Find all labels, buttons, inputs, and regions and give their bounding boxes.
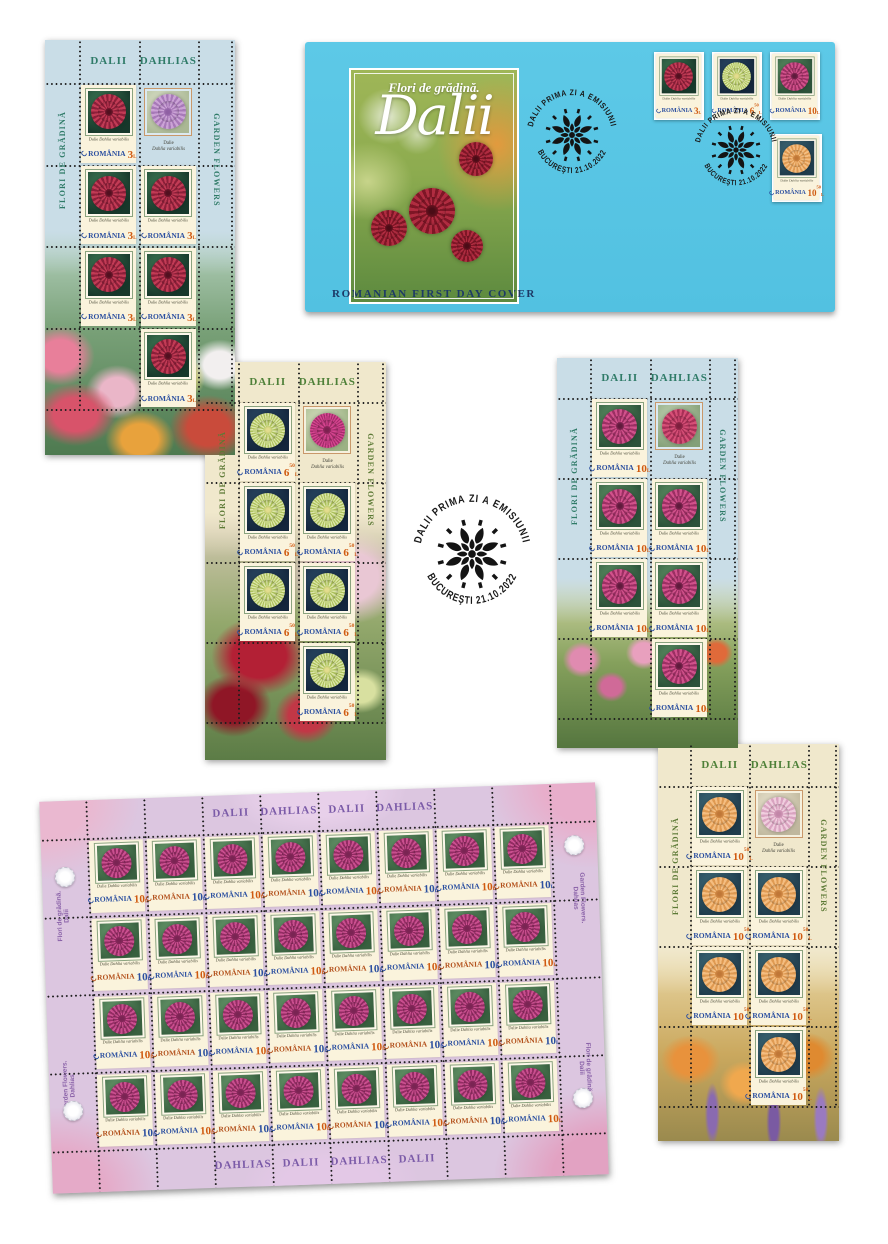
stamp-species-caption: Dalie Dahlia variabilis [392,1029,432,1035]
stamp-species-caption: Dalie Dahlia variabilis [506,947,546,953]
posthorn-icon [211,1126,219,1134]
stamp-country-value-row: ROMÂNIA 10L [327,1115,388,1135]
posthorn-icon [260,890,268,898]
margin-label: Garden Flowers.Dahlias [566,838,592,959]
stamp-photo [758,1033,800,1075]
stamp: Dalie Dahlia variabilis ROMÂNIA 10L [149,915,205,989]
header-dalii: DALII [590,358,650,398]
stamp-country-value-row: ROMÂNIA 10L [501,1109,562,1129]
posthorn-icon [588,464,596,472]
stamp-country-value-row: ROMÂNIA 10L [385,1113,446,1133]
country-name: ROMÂNIA [210,891,248,900]
postmark-rosette-icon [546,109,599,162]
stamp-country-value-row: ROMÂNIA 10L [589,459,650,477]
sheet-top-labels: DALII DAHLIAS DALII DAHLIAS [201,795,434,825]
country-name: ROMÂNIA [88,313,126,321]
country-name: ROMÂNIA [693,1012,731,1020]
stamp-photo-frame [93,841,139,884]
stamp-photo [276,994,316,1030]
dahlia-flower-icon [457,1069,488,1100]
stamp-species-caption: Dalie Dahlia variabilis [248,616,288,620]
minisheet-red-3l: Dalie Dahlia variabilis ROMÂNIA 3L Dalie… [45,40,235,455]
country-name: ROMÂNIA [271,967,309,976]
stamp: Dalie Dahlia variabilis ROMÂNIA 10L [326,987,382,1061]
country-name: ROMÂNIA [505,1037,543,1046]
dahlia-flower-icon [222,999,253,1030]
stamp-photo [510,1064,550,1100]
country-name: ROMÂNIA [102,1129,140,1138]
country-name: ROMÂNIA [216,1047,254,1056]
stamp-photo-frame [499,827,545,870]
stamp-species-caption: Dalie Dahlia variabilis [213,879,253,885]
stamp-country-value-row: ROMÂNIA 650L [237,463,298,481]
stamp: Dalie Dahlia variabilis ROMÂNIA 10L [147,837,203,911]
vignette-photo-frame [655,402,703,450]
dahlia-flower-icon [780,62,809,91]
stamp-photo [502,830,542,866]
stamp-photo [331,914,371,950]
dahlia-flower-icon [101,847,132,878]
vignette-photo [758,793,800,835]
stamp-species-caption: Dalie Dahlia variabilis [279,1111,319,1117]
postmark-rosette-icon [438,520,507,589]
stamp-photo [505,908,545,944]
stamp-value: 3L [187,226,196,244]
stamp-photo-frame [596,402,644,450]
stamp-photo-frame [144,332,192,380]
svg-text:BUCUREŞTI 21.10.2022: BUCUREŞTI 21.10.2022 [703,162,770,187]
stamp-photo-frame [755,870,803,918]
stamp: Dalie Dahlia variabilis ROMÂNIA 10L [271,1067,327,1141]
svg-text:DALII PRIMA ZI A EMISIUNII: DALII PRIMA ZI A EMISIUNII [693,106,779,143]
dahlia-flower-icon [512,989,543,1020]
stamp: Dalie Dahlia variabilis ROMÂNIA 10L [89,839,145,913]
country-name: ROMÂNIA [450,1117,488,1126]
stamp-photo [306,489,348,531]
stamp-country-value-row: ROMÂNIA 10L [150,1043,211,1063]
stamp-country-value-row: ROMÂNIA 10L [498,1031,559,1051]
stamp-photo [102,1000,142,1036]
country-name: ROMÂNIA [304,548,342,556]
dahlia-flower-icon [662,649,697,684]
stamp-country-value-row: ROMÂNIA 10L [153,1121,214,1141]
stamp-country-value-row: ROMÂNIA 1050L [745,927,811,945]
stamp-country-value-row: ROMÂNIA 10L [589,539,650,557]
stamp-issue-presentation: Dalie Dahlia variabilis ROMÂNIA 3L Dalie… [0,0,888,1244]
country-name: ROMÂNIA [304,708,342,716]
stamp-species-caption: Dalie Dahlia variabilis [332,953,372,959]
stamp-photo [389,912,429,948]
stamp-species-caption: Dalie Dahlia variabilis [699,920,739,924]
stamp: Dalie Dahlia variabilis ROMÂNIA 1050L [692,947,747,1025]
country-name: ROMÂNIA [500,881,538,890]
side-label-en: GARDEN FLOWERS [211,90,223,230]
stamp-species-caption: Dalie Dahlia variabilis [97,883,137,889]
country-name: ROMÂNIA [97,973,135,982]
stamp-value: 10L [547,1109,562,1127]
stamp: Dalie Dahlia variabilis ROMÂNIA 10L [329,1065,385,1139]
dahlia-flower-icon [151,176,186,211]
sheet-header: DALII DAHLIAS [238,362,357,402]
header-dahlias: DAHLIAS [750,744,810,786]
dahlia-flower-icon [761,877,796,912]
stamp-value: 3L [187,389,196,407]
stamp-photo [719,59,753,93]
stamp-country-value-row: ROMÂNIA 10L [266,1039,327,1059]
posthorn-icon [495,960,503,968]
country-name: ROMÂNIA [596,544,634,552]
stamp: Dalie Dahlia variabilis ROMÂNIA 10L [652,559,707,637]
dahlia-flower-icon [225,1077,256,1108]
country-name: ROMÂNIA [447,1039,485,1048]
stamp-value: 1050L [792,1007,812,1025]
stamp-value: 10L [542,953,557,971]
posthorn-icon [379,964,387,972]
stamp-species-caption: Dalie Dahlia variabilis [221,1113,261,1119]
posthorn-icon [140,394,148,402]
posthorn-icon [437,962,445,970]
stamp-species-caption: Dalie Dahlia variabilis [448,949,488,955]
stamp-photo-frame [383,831,429,874]
posthorn-icon [321,966,329,974]
country-name: ROMÂNIA [155,971,193,980]
vignette-caption: DalieDahlia variabilis [311,459,344,471]
stamp-photo [599,405,641,447]
stamp-photo [394,1068,434,1104]
stamp-species-caption: Dalie Dahlia variabilis [662,97,695,101]
country-name: ROMÂNIA [148,232,186,240]
dahlia-flower-icon [151,339,186,374]
stamp-value: 10L [808,103,820,118]
stamp: Dalie Dahlia variabilis ROMÂNIA 10L [379,829,435,903]
stamp-photo-frame [333,1067,379,1110]
sheet-vignette-label: DalieDahlia variabilis [751,787,806,865]
stamp-country-value-row: ROMÂNIA 3L [141,389,196,407]
dahlia-flower-icon [275,841,306,872]
posthorn-icon [202,892,210,900]
stamp-photo-frame [596,562,644,610]
stamp-photo-frame [303,486,351,534]
stamp-photo [661,59,695,93]
dahlia-flower-icon [164,1001,195,1032]
stamp-country-value-row: ROMÂNIA 10L [649,539,710,557]
posthorn-icon [80,231,88,239]
dahlia-flower-icon [338,995,369,1026]
stamp: Dalie Dahlia variabilis ROMÂNIA 10L [91,917,147,991]
stamp-country-value-row: ROMÂNIA 3L [141,308,196,326]
dahlia-flower-icon [664,62,693,91]
stamp-photo-frame [273,991,319,1034]
stamp-photo-frame [154,917,200,960]
stamp-species-caption: Dalie Dahlia variabilis [271,877,311,883]
svg-text:DALII PRIMA ZI A EMISIUNII: DALII PRIMA ZI A EMISIUNII [412,493,532,545]
stamp-country-value-row: ROMÂNIA 3L [81,308,136,326]
country-name: ROMÂNIA [244,468,282,476]
stamp-grid: Dalie Dahlia variabilis ROMÂNIA 10L Dali… [87,822,562,1150]
stamp-photo [444,832,484,868]
country-name: ROMÂNIA [387,963,425,972]
country-name: ROMÂNIA [752,932,790,940]
stamp-photo [247,569,289,611]
stamp-value: 10L [545,1031,560,1049]
posthorn-icon [269,1124,277,1132]
stamp-species-caption: Dalie Dahlia variabilis [274,955,314,961]
dahlia-flower-icon [91,176,126,211]
stamp-photo-frame [655,482,703,530]
stamp-species-caption: Dalie Dahlia variabilis [511,1103,551,1109]
dahlia-flower-icon [602,409,637,444]
stamp: Dalie Dahlia variabilis ROMÂNIA 10L [494,825,550,899]
country-name: ROMÂNIA [276,1123,314,1132]
dahlia-flower-icon [278,919,309,950]
first-day-postmark: DALII PRIMA ZI A EMISIUNII BUCUREŞTI 21.… [520,83,624,187]
stamp-photo-frame [244,406,292,454]
dahlia-flower-icon [515,1067,546,1098]
stamp: Dalie Dahlia variabilis ROMÂNIA 650L [240,563,295,641]
sheet-header: DALII DAHLIAS [590,358,709,398]
posthorn-icon [150,1050,158,1058]
stamp: Dalie Dahlia variabilis ROMÂNIA 10L [592,479,647,557]
stamp-species-caption: Dalie Dahlia variabilis [780,179,813,183]
stamp-photo-frame [325,833,371,876]
stamp: Dalie Dahlia variabilis ROMÂNIA 10L [592,399,647,477]
stamp-country-value-row: ROMÂNIA 10L [649,619,710,637]
stamp: Dalie Dahlia variabilis ROMÂNIA 10L [384,985,440,1059]
dahlia-flower-icon [396,993,427,1024]
stamp: Dalie Dahlia variabilis ROMÂNIA 10L [213,1069,269,1143]
margin-label: Flori de grădină.Dalii [572,1008,598,1129]
stamp-photo-frame [386,909,432,952]
stamp-species-caption: Dalie Dahlia variabilis [337,1109,377,1115]
stamp: Dalie Dahlia variabilis ROMÂNIA 3L [141,329,196,407]
stamp-country-value-row: ROMÂNIA 10L [93,1045,154,1065]
stamp-photo [336,1070,376,1106]
dahlia-flower-icon [159,845,190,876]
first-day-cover: Flori de grădină. Dalii ROMANIAN FIRST D… [305,42,835,312]
dahlia-flower-icon [449,835,480,866]
country-name: ROMÂNIA [160,1127,198,1136]
stamp-photo [599,485,641,527]
country-name: ROMÂNIA [442,883,480,892]
stamp-species-caption: Dalie Dahlia variabilis [600,452,640,456]
posthorn-icon [500,1116,508,1124]
stamp-photo-frame [447,985,493,1028]
stamp: Dalie Dahlia variabilis ROMÂNIA 10L [152,993,208,1067]
fdc-photo-frame: Flori de grădină. Dalii [349,68,519,304]
posthorn-icon [324,1044,332,1052]
stamp-species-caption: Dalie Dahlia variabilis [758,1080,798,1084]
dahlia-flower-icon [454,991,485,1022]
stamp-photo [220,1074,260,1110]
stamp-country-value-row: ROMÂNIA 650L [297,543,358,561]
stamp-species-caption: Dalie Dahlia variabilis [659,532,699,536]
stamp-country-value-row: ROMÂNIA 10L [145,887,206,907]
dahlia-flower-icon [399,1071,430,1102]
header-dahlias: DAHLIAS [139,40,199,83]
photo-cell [590,638,650,718]
stamp-species-caption: Dalie Dahlia variabilis [216,957,256,963]
stamp-species-caption: Dalie Dahlia variabilis [758,920,798,924]
svg-text:BUCUREŞTI 21.10.2022: BUCUREŞTI 21.10.2022 [536,148,608,175]
stamp-photo [392,990,432,1026]
stamp-value: 650L [343,703,357,721]
stamp-country-value-row: ROMÂNIA 650L [297,703,358,721]
country-name: ROMÂNIA [88,232,126,240]
stamp-photo [247,489,289,531]
vignette-photo-frame [303,406,351,454]
dahlia-flower-icon [336,917,367,948]
sheet-bottom-labels: DAHLIAS DALII DAHLIAS DALII [214,1147,447,1177]
stamp-species-caption: Dalie Dahlia variabilis [219,1035,259,1041]
side-label-en: GARDEN FLOWERS [818,796,830,936]
country-name: ROMÂNIA [148,395,186,403]
posthorn-icon [236,548,244,556]
vignette-photo-frame [755,790,803,838]
dahlia-flower-icon [602,569,637,604]
stamp-photo-frame [303,566,351,614]
stamp: Dalie Dahlia variabilis ROMÂNIA 650L [300,563,355,641]
dahlia-flower-icon [702,877,737,912]
posthorn-icon [442,1118,450,1126]
dahlia-flower-icon [702,957,737,992]
stamp-photo-frame [144,251,192,299]
stamp-country-value-row: ROMÂNIA 3L [81,145,136,163]
dahlia-flower-icon [151,257,186,292]
stamp-species-caption: Dalie Dahlia variabilis [659,612,699,616]
stamp-species-caption: Dalie Dahlia variabilis [89,219,129,223]
dahlia-flower-icon [341,1073,372,1104]
dahlia-flower-icon [106,1003,137,1034]
posthorn-icon [588,544,596,552]
stamp-photo-frame [696,950,744,998]
side-label-en: GARDEN FLOWERS [717,406,729,546]
posthorn-icon [296,708,304,716]
stamp-grid: Dalie Dahlia variabilis ROMÂNIA 10L Dali… [590,398,709,718]
country-name: ROMÂNIA [508,1115,546,1124]
stamp-species-caption: Dalie Dahlia variabilis [100,961,140,967]
stamp-photo [88,91,130,133]
dahlia-flower-icon [310,413,345,448]
stamp-photo [599,565,641,607]
country-name: ROMÂNIA [596,624,634,632]
stamp: Dalie Dahlia variabilis ROMÂNIA 10L [442,983,498,1057]
stamp-photo-frame [270,913,316,956]
dahlia-flower-icon [151,94,186,129]
stamp-photo-frame [101,1075,147,1118]
posthorn-icon [80,313,88,321]
vignette-photo [306,409,348,451]
stamp: Dalie Dahlia variabilis ROMÂNIA 10L [387,1063,443,1137]
stamp-species-caption: Dalie Dahlia variabilis [699,840,739,844]
dahlia-flower-icon [391,837,422,868]
stamp-country-value-row: ROMÂNIA 10L [382,1035,443,1055]
stamp-country-value-row: ROMÂNIA 10L [322,959,383,979]
posthorn-icon [492,882,500,890]
sheet-vignette-label: DalieDahlia variabilis [652,399,707,477]
stamp-photo [452,1066,492,1102]
stamp: Dalie Dahlia variabilis ROMÂNIA 10L [207,913,263,987]
country-name: ROMÂNIA [148,313,186,321]
stamp-photo-frame [755,1030,803,1078]
stamp-photo [699,873,741,915]
stamp: Dalie Dahlia variabilis ROMÂNIA 10L [94,995,150,1069]
dahlia-flower-icon [109,1081,140,1112]
stamp-photo-frame [151,839,197,882]
stamp: Dalie Dahlia variabilis ROMÂNIA 10L [652,639,707,717]
stamp-photo [99,922,139,958]
posthorn-icon [434,884,442,892]
minisheet-pink-10l: Dalie Dahlia variabilis ROMÂNIA 10L Dali… [557,358,738,748]
stamp-photo-frame [449,1063,495,1106]
posthorn-icon [685,852,693,860]
dahlia-flower-icon [451,230,483,262]
stamp-value: 650L [343,543,357,561]
stamp: Dalie Dahlia variabilis ROMÂNIA 10L [323,909,379,983]
stamp-photo [658,645,700,687]
stamp-species-caption: Dalie Dahlia variabilis [329,875,369,881]
stamp-photo [157,920,197,956]
stamp-country-value-row: ROMÂNIA 10L [440,1033,501,1053]
dahlia-flower-icon [280,997,311,1028]
stamp-photo-frame [217,1071,263,1114]
dahlia-flower-icon [371,210,407,246]
country-name: ROMÂNIA [94,895,132,904]
stamp-country-value-row: ROMÂNIA 10L [649,699,710,717]
header-dalii: DALII [79,40,139,83]
country-name: ROMÂNIA [503,959,541,968]
country-name: ROMÂNIA [304,628,342,636]
dahlia-flower-icon [91,257,126,292]
stamp-species-caption: Dalie Dahlia variabilis [758,1000,798,1004]
dahlia-flower-icon [409,188,455,234]
country-name: ROMÂNIA [656,624,694,632]
vignette-photo-frame [144,88,192,136]
stamp: Dalie Dahlia variabilis ROMÂNIA 10L [445,1061,501,1135]
stamp-country-value-row: ROMÂNIA 650L [297,623,358,641]
stamp-photo-frame [303,646,351,694]
stamp: Dalie Dahlia variabilis ROMÂNIA 10L [97,1073,153,1147]
stamp-photo [147,172,189,214]
stamp-species-caption: Dalie Dahlia variabilis [163,1115,203,1121]
dahlia-flower-icon [91,94,126,129]
country-name: ROMÂNIA [218,1125,256,1134]
stamp-country-value-row: ROMÂNIA 10L [319,881,380,901]
stamp-photo-frame [655,562,703,610]
stamp-species-caption: Dalie Dahlia variabilis [148,219,188,223]
header-dahlias: DAHLIAS [650,358,710,398]
stamp-photo [278,1072,318,1108]
stamp: Dalie Dahlia variabilis ROMÂNIA 650L [300,483,355,561]
posthorn-icon [498,1038,506,1046]
stamp: Dalie Dahlia variabilis ROMÂNIA 1050L [692,867,747,945]
posthorn-icon [648,704,656,712]
stamp-species-caption: Dalie Dahlia variabilis [277,1033,317,1039]
stamp-photo [96,844,136,880]
stamp: Dalie Dahlia variabilis ROMÂNIA 3L [141,166,196,244]
country-name: ROMÂNIA [332,1043,370,1052]
posthorn-icon [318,888,326,896]
dahlia-flower-icon [761,797,796,832]
photo-cell [79,328,139,410]
stamp-value: 1050L [807,185,823,200]
stamp-country-value-row: ROMÂNIA 1050L [745,1087,811,1105]
side-label-ro: FLORI DE GRĂDINĂ [216,410,228,550]
stamp-photo-frame [659,56,698,95]
stamp: Dalie Dahlia variabilis ROMÂNIA 10L [503,1059,559,1133]
country-name: ROMÂNIA [244,548,282,556]
dahlia-flower-icon [459,142,493,176]
stamp: Dalie Dahlia variabilis ROMÂNIA 650L [240,403,295,481]
